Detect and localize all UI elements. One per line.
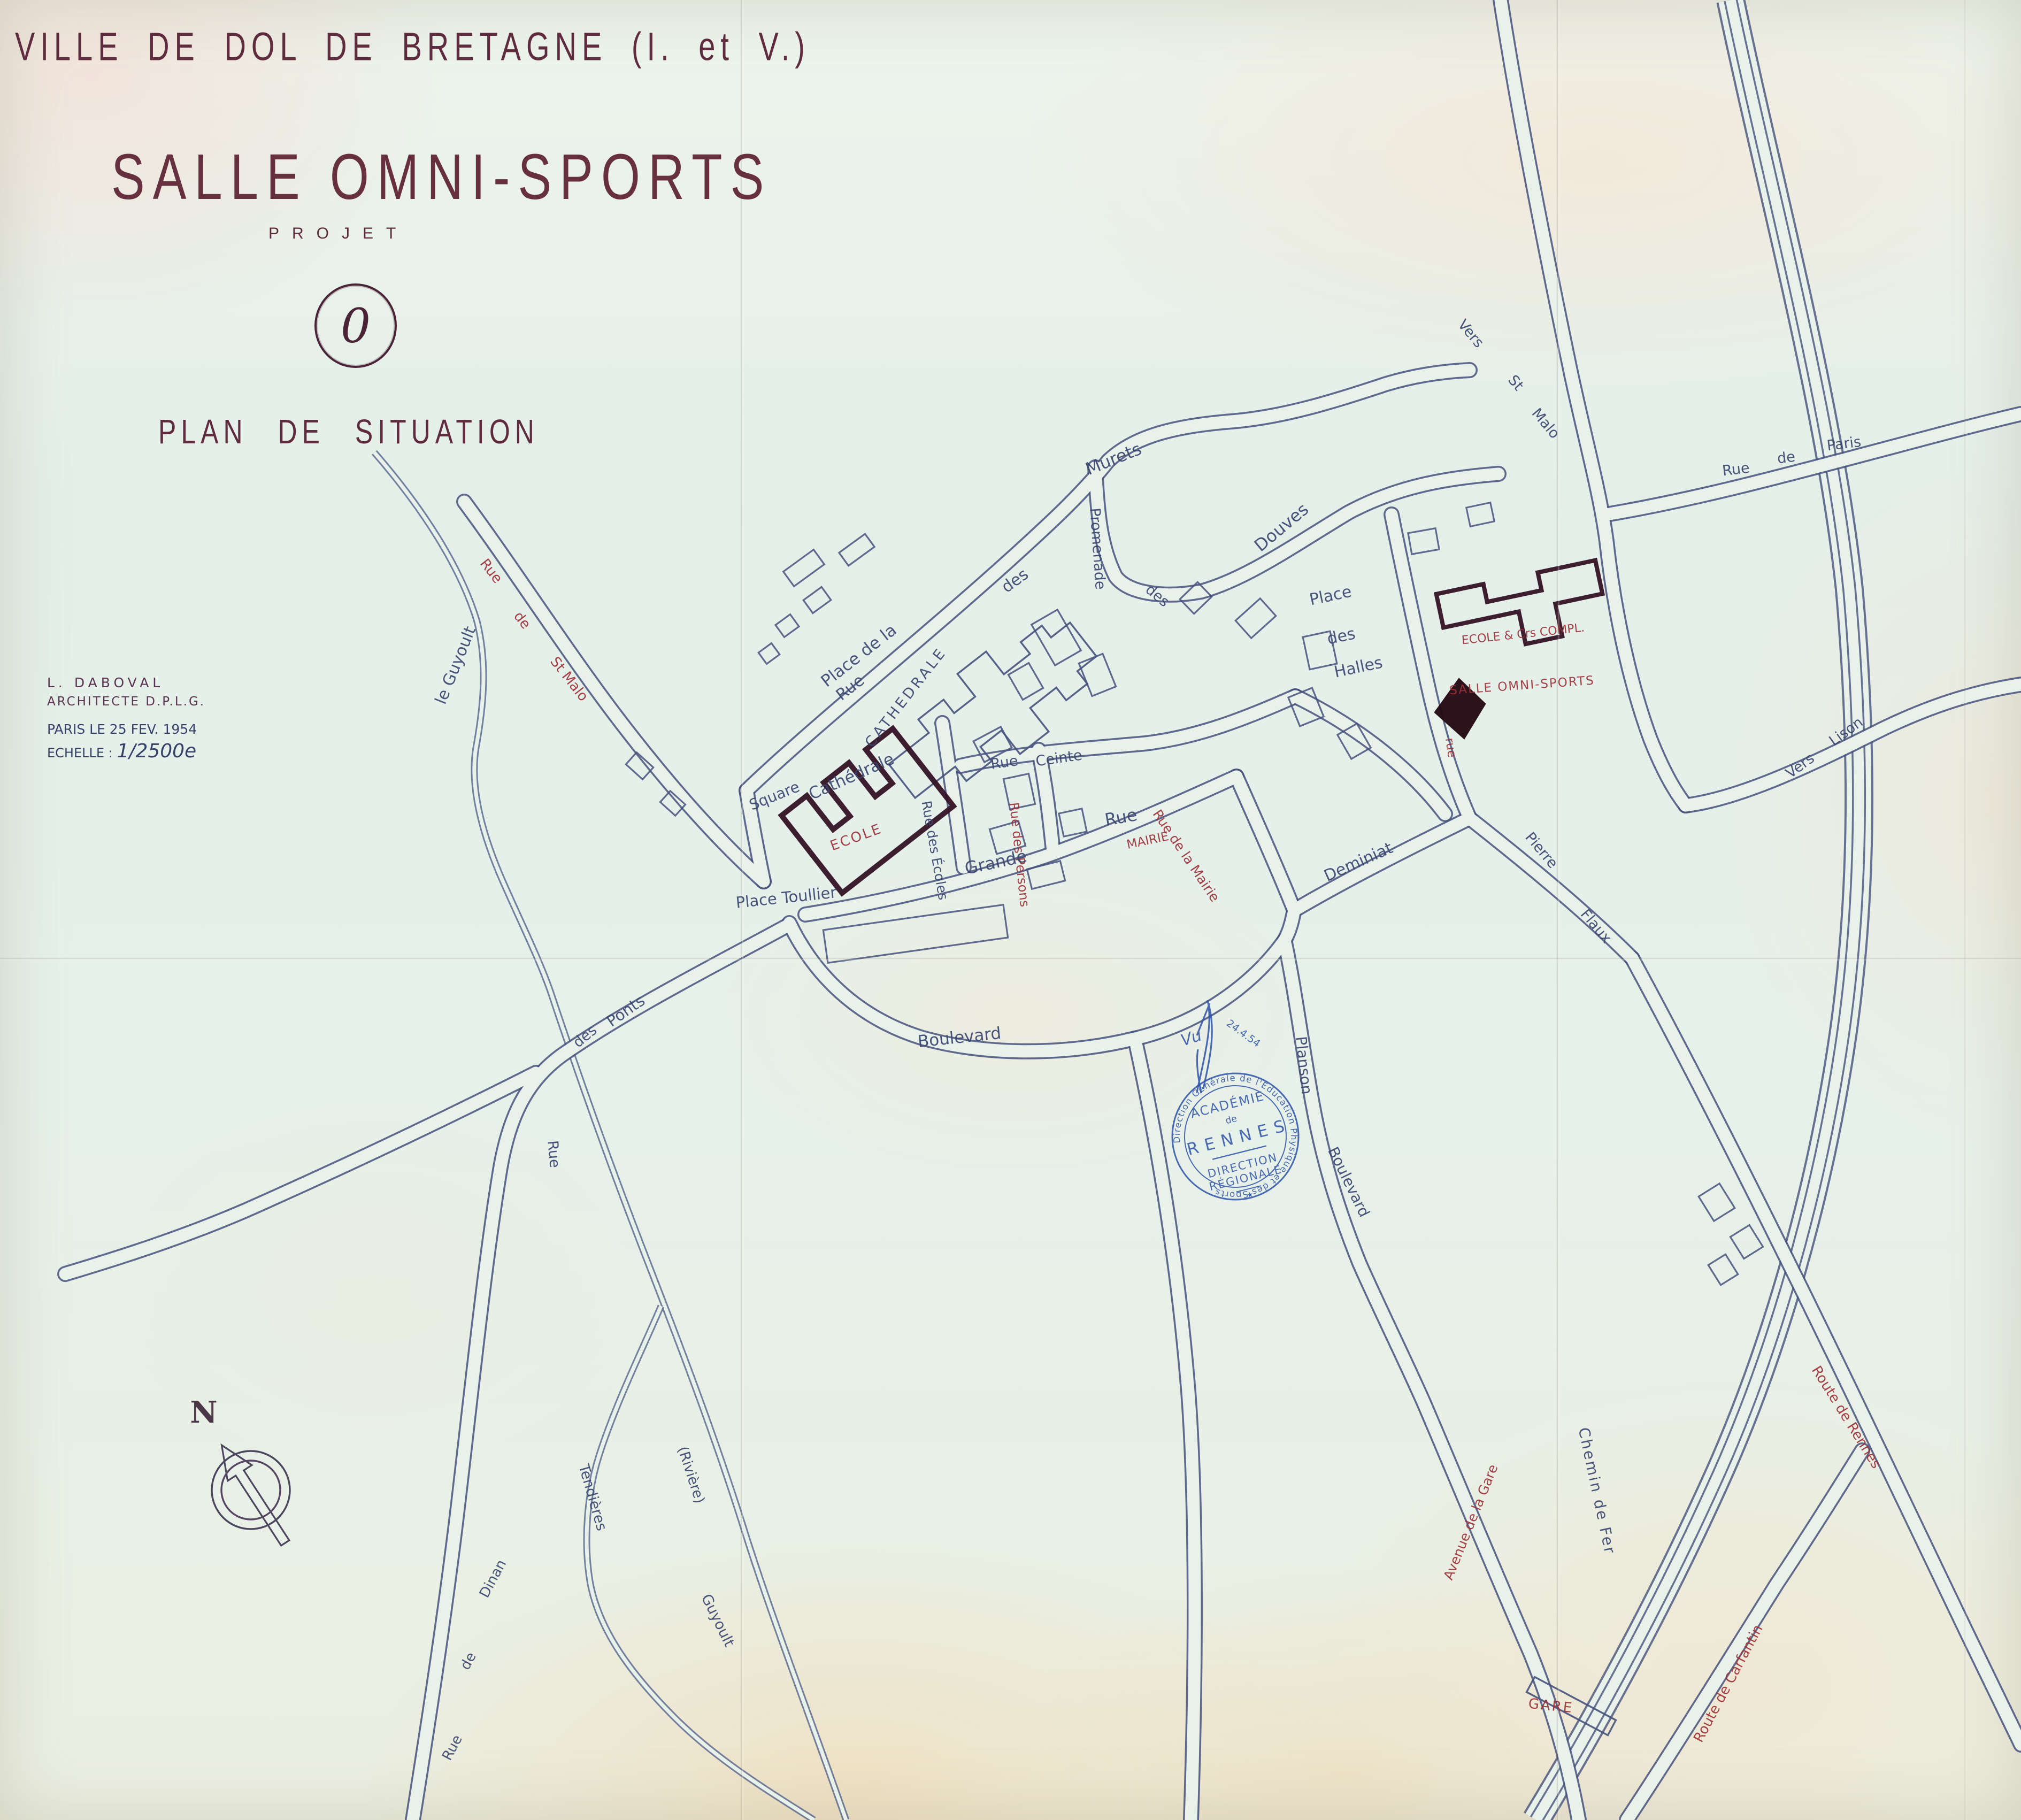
map-label-planson: Planson (1292, 1035, 1316, 1095)
map-label-murets: Murets (1082, 439, 1144, 479)
map-label-ponts: Ponts (603, 991, 648, 1030)
map-label-route-de-carfantin: Route de Carfantin (1690, 1622, 1766, 1745)
map-label-(rivière): (Rivière) (674, 1445, 708, 1506)
map-label-chemin-de-fer: Chemin de Fer (1575, 1426, 1619, 1556)
map-label-ceinte: Ceinte (1035, 747, 1083, 770)
map-label-rue-de-la-mairie: Rue de la Mairie (1150, 807, 1223, 904)
map-label-dinan: Dinan (477, 1557, 510, 1600)
map-label-de: de (510, 609, 534, 632)
map-label-st: St (1504, 372, 1527, 394)
map-label-vers: Vers (1782, 750, 1817, 781)
map-label-square: Square (747, 778, 802, 814)
map-label-avenue-de-la-gare: Avenue de la Gare (1440, 1462, 1501, 1582)
map-label-rue: Rue (439, 1732, 466, 1763)
map-label-paris: Paris (1826, 434, 1862, 455)
map-label-de: de (457, 1650, 480, 1673)
map-label-des: des (1325, 624, 1357, 648)
map-label-des: des (570, 1022, 601, 1051)
map-label-flaux: Flaux (1577, 906, 1615, 947)
map-label-rue: Rue (989, 752, 1019, 773)
map-label-vers: Vers (1454, 317, 1487, 351)
map-label-ecole: ECOLE (828, 821, 884, 855)
map-label-le-guyoult: le Guyoult (432, 624, 480, 707)
map-label-rue: rue (1442, 737, 1458, 758)
map-label-rue: Rue (544, 1140, 563, 1169)
map-label-rue-des-écoles: Rue des Écoles (918, 800, 951, 901)
map-label-boulevard: Boulevard (1324, 1144, 1373, 1220)
map-label-cathédrale: Cathédrale (806, 749, 897, 804)
map-label-st-malo: St Malo (547, 654, 591, 704)
map-label-gare: GARE (1527, 1696, 1574, 1717)
map-label-des: des (998, 565, 1032, 597)
map-label-pierre: Pierre (1521, 829, 1561, 871)
map-label-promenade: Promenade (1086, 508, 1109, 590)
map-label-lison: Lison (1826, 714, 1866, 749)
map-label-salle-omni-sports: SALLE OMNI-SPORTS (1449, 674, 1595, 698)
map-label-place: Place (1308, 582, 1353, 610)
map-label-cathedrale: CATHEDRALE (862, 644, 950, 751)
map-label-guyoult: Guyoult (698, 1592, 737, 1650)
map-label-halles: Halles (1333, 653, 1385, 681)
map-label-place-toullier: Place Toullier (735, 883, 837, 912)
scanned-site-plan-sheet: N Direction Générale de l'Éducation Phys… (0, 0, 2021, 1820)
map-label-douves: Douves (1250, 499, 1312, 556)
map-label-tendières: Tendières (575, 1462, 610, 1533)
map-label-route-de-rennes: Route de Rennes (1808, 1363, 1884, 1471)
map-label-rue: Rue (1722, 459, 1751, 479)
map-label-rue: Rue (477, 556, 505, 586)
map-label-rue: Rue (1103, 804, 1139, 830)
map-label-deminiat: Deminiat (1321, 839, 1395, 886)
map-label-malo: Malo (1528, 405, 1563, 442)
map-label-de: de (1776, 449, 1796, 467)
map-labels-layer: RuedesMuretsPromenadedesDouvesPlacedesHa… (0, 0, 2021, 1820)
map-label-des: des (1142, 581, 1173, 610)
map-label-boulevard: Boulevard (917, 1024, 1002, 1051)
map-label-ecole-crs-compl-: ECOLE & Crs COMPL. (1461, 621, 1585, 647)
